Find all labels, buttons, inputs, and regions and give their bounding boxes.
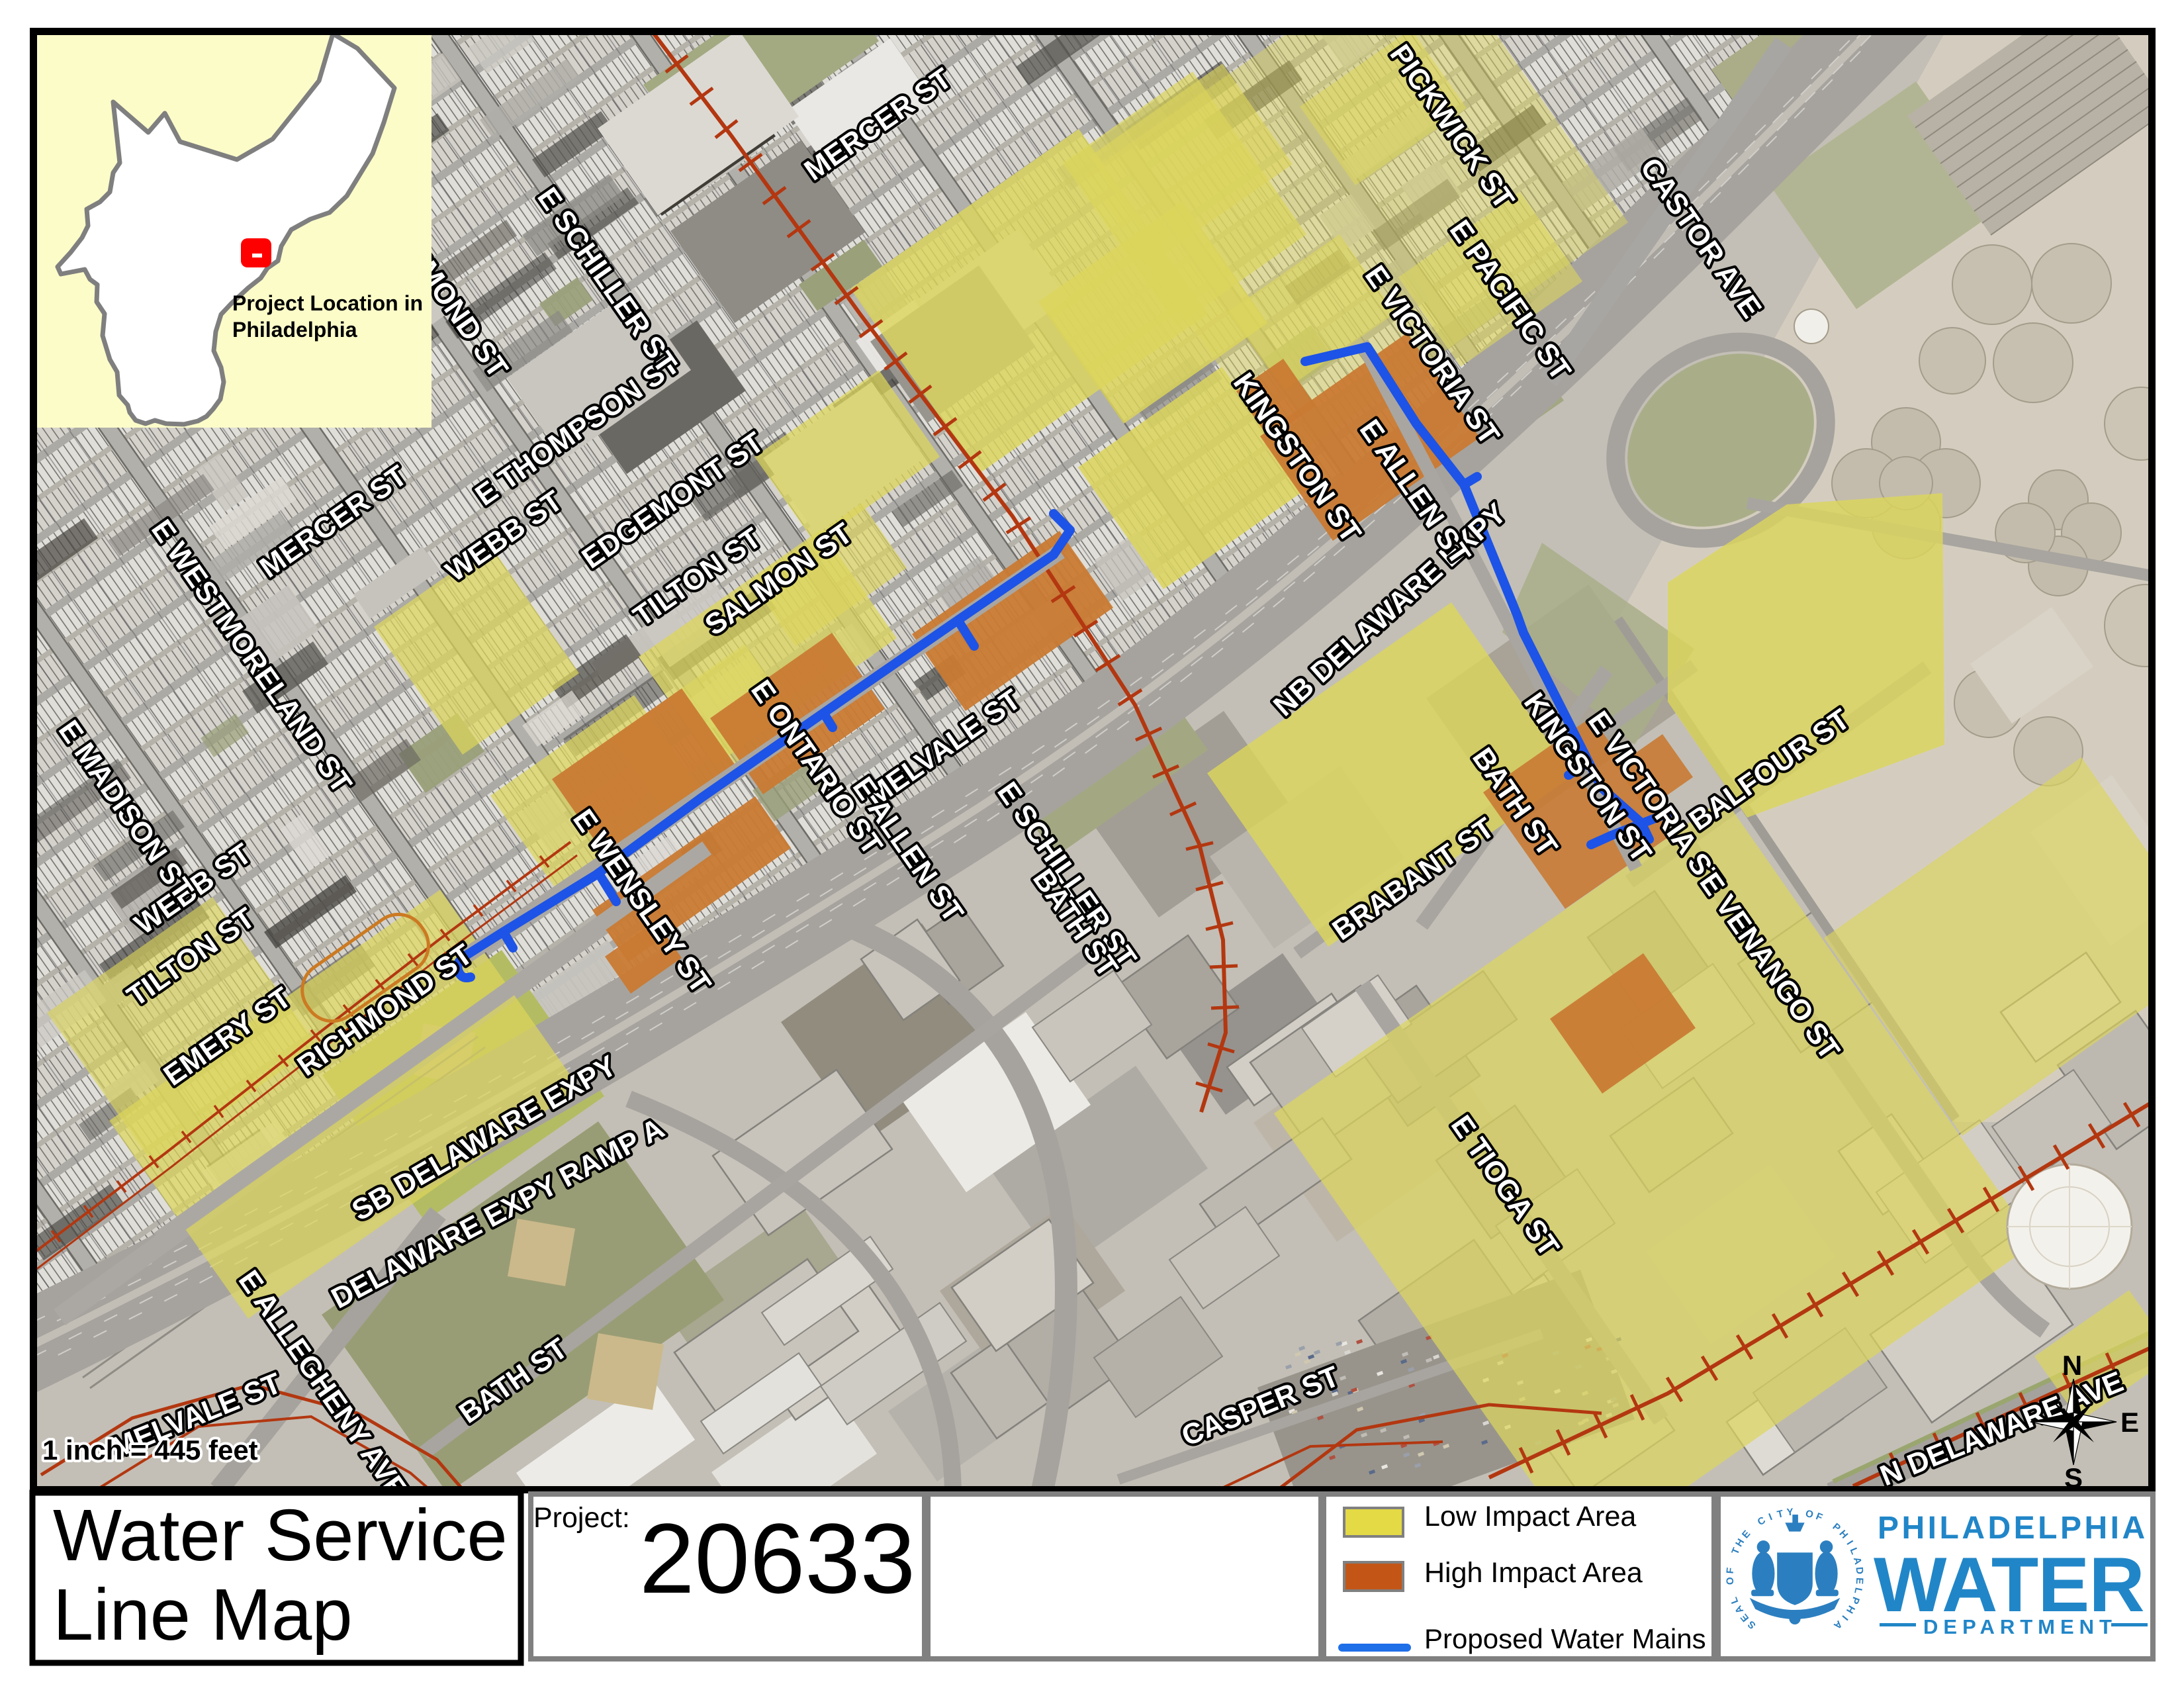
- svg-text:F: F: [1725, 1567, 1737, 1574]
- svg-text:Philadelphia: Philadelphia: [232, 318, 357, 342]
- svg-text:E: E: [1854, 1577, 1866, 1585]
- svg-text:High Impact Area: High Impact Area: [1424, 1557, 1643, 1589]
- svg-text:E: E: [2120, 1407, 2139, 1438]
- svg-text:1 inch = 445 feet: 1 inch = 445 feet: [42, 1434, 258, 1466]
- svg-text:Proposed Water Mains: Proposed Water Mains: [1424, 1623, 1706, 1654]
- svg-text:DEPARTMENT: DEPARTMENT: [1923, 1615, 2117, 1638]
- svg-text:Project:: Project:: [533, 1502, 630, 1534]
- svg-text:Project Location in: Project Location in: [232, 291, 423, 315]
- svg-text:O: O: [1725, 1577, 1737, 1585]
- svg-text:Water Service: Water Service: [53, 1495, 508, 1576]
- svg-text:N: N: [2062, 1350, 2082, 1381]
- svg-text:Low Impact Area: Low Impact Area: [1424, 1501, 1636, 1532]
- svg-text:Y: Y: [1786, 1507, 1794, 1519]
- svg-text:D: D: [1854, 1566, 1866, 1574]
- svg-text:Line Map: Line Map: [53, 1574, 353, 1656]
- svg-text:20633: 20633: [639, 1503, 915, 1614]
